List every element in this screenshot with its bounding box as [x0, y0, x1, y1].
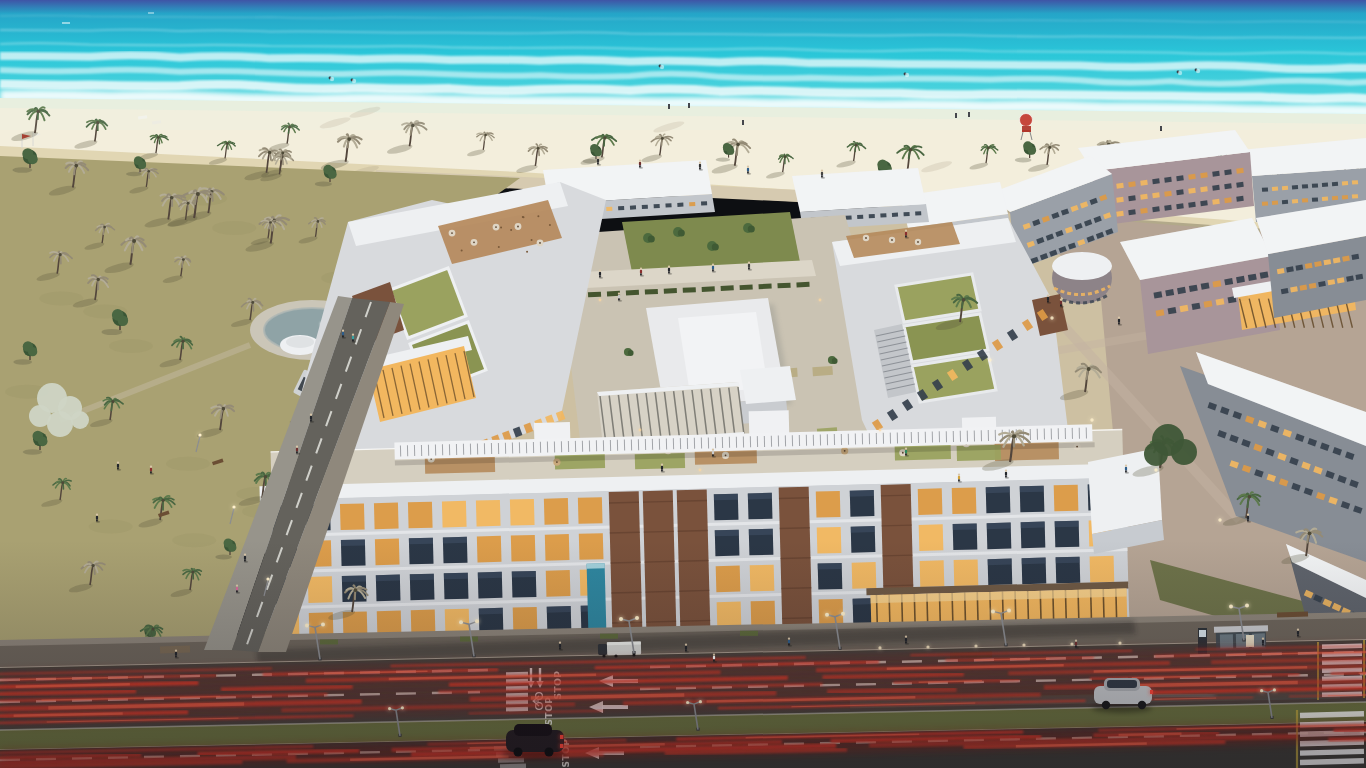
beachfront-development-render: STOPSTOPSTOP	[0, 0, 1366, 768]
render-viewport: STOPSTOPSTOP	[0, 0, 1366, 768]
